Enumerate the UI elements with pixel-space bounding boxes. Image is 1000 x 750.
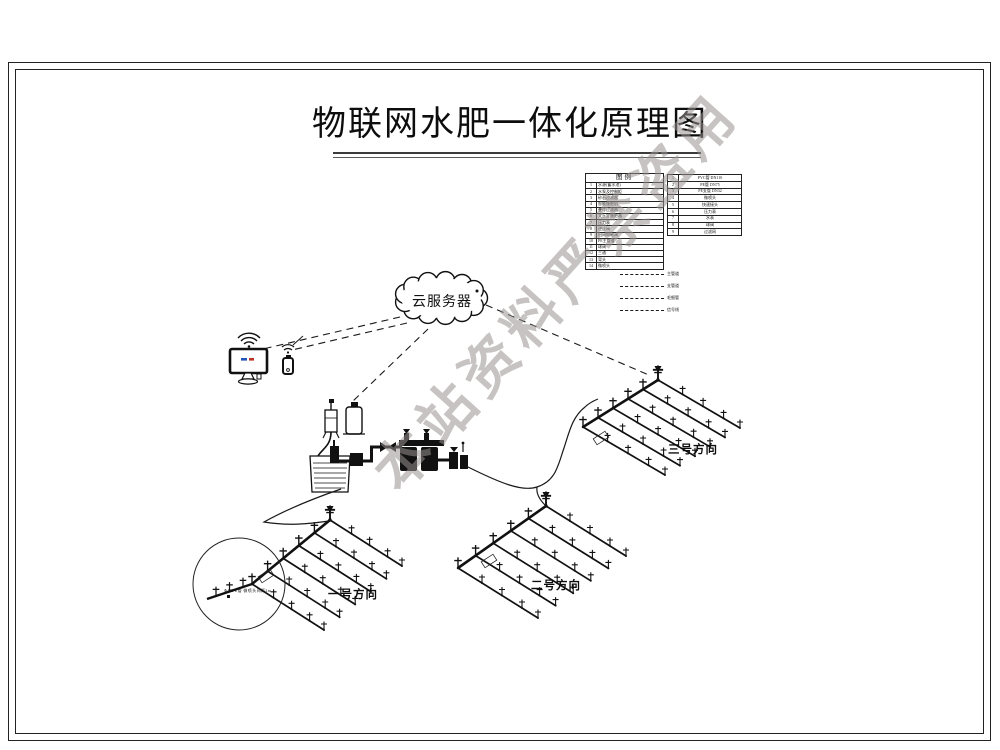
sprinkler-base [313,532,316,535]
field-main-line [252,520,330,584]
sprinkler-base [591,557,593,559]
sprinkler-base [306,596,308,598]
sprinkler-base [499,570,501,572]
irrigation-fields [207,366,743,631]
sprinkler-base [510,530,513,533]
sprinkler-base [597,416,600,419]
legend-line-types: 主管道支管道毛细管信号线 [620,268,710,316]
sprinkler-base [590,580,592,582]
pump-station [310,399,468,492]
irrigation-field-2 [454,492,629,619]
field-main-line [458,506,546,568]
sprinkler-base [648,464,650,466]
sprinkler-base [657,434,659,436]
sprinkler-base [551,532,553,534]
sprinkler-base [527,517,530,520]
sprinkler-base [273,597,275,599]
legend-table-secondary: 1PVC管 DN1102PE管 DN753PE支管 DN324微喷头5快速接头6… [667,174,742,236]
legend-cell: 6 [668,208,679,215]
sprinkler-base [663,455,665,457]
field-2-label: 二号方向 [531,577,581,593]
line-type-sample [620,274,664,275]
sprinkler-base [481,582,483,584]
sprinkler-base [534,545,536,547]
sprinkler-base [612,407,615,410]
sprinkler-base [637,422,639,424]
field-3-label: 三号方向 [668,441,718,457]
submersible-pump [330,446,339,463]
sprinkler-base [304,571,306,573]
sand-filter [421,447,438,471]
pipe-to-field-3 [466,399,598,488]
field-lateral [628,399,710,447]
sprinkler-base [501,595,503,597]
sprinkler-base [519,582,521,584]
field-lateral [528,518,608,568]
sprinkler-base [723,417,725,419]
schematic-drawing [0,0,1000,750]
line-type-label: 毛细管 [667,295,679,301]
sprinkler-base [324,607,326,609]
sprinkler-base [457,567,460,570]
detail-annotation: Φ40PE管 微喷头间距2m [224,588,286,594]
sprinkler-base [642,443,644,445]
disc-filter [449,452,458,469]
legend-cell: 1 [668,175,679,182]
irrigation-field-3 [579,366,743,476]
line-type-sample [620,298,664,299]
legend-title: 图例 [586,174,664,183]
line-type-row: 毛细管 [620,292,710,304]
field-lateral [658,380,740,428]
sprinkler-base [609,545,611,547]
line-type-label: 支管道 [667,283,679,289]
booster-pump [350,453,363,466]
sprinkler-base [322,583,324,585]
field-lateral [643,389,725,437]
check-valve [380,442,388,452]
sprinkler-base [702,405,704,407]
pc-monitor-icon [230,333,267,384]
line-type-label: 信号线 [667,307,679,313]
sprinkler-base [335,546,337,548]
link-cloud-to-pc [263,317,400,349]
sprinkler-base [672,424,674,426]
sprinkler-base [537,617,539,619]
sprinkler-base [385,578,387,580]
sprinkler-base [574,570,576,572]
sprinkler-base [291,608,293,610]
fertilizer-tank-b [346,407,362,434]
sprinkler-base [337,570,339,572]
sprinkler-base [682,393,684,395]
sprinkler-base [569,520,571,522]
legend-cell: PVC管 DN110 [679,175,742,182]
legend-cell: 4 [668,195,679,202]
sprinkler-base [582,426,585,429]
line-type-row: 主管道 [620,268,710,280]
line-type-sample [620,310,664,311]
sprinkler-base [625,555,627,557]
field-lateral [299,546,371,592]
legend-cell: 微喷头 [679,195,742,202]
sprinkler-base [607,567,609,569]
sprinkler-base [607,440,609,442]
sprinkler-base [369,544,371,546]
line-type-sample [620,286,664,287]
sprinkler-base [656,378,659,381]
field-lateral [511,531,591,581]
legend-cell: 水表 [679,215,742,222]
legend-cell: PE支管 DN32 [679,188,742,195]
legend-cell: 球阀 [679,222,742,229]
sprinkler-base [298,544,301,547]
legend-cell: 9 [668,229,679,236]
sand-filter [400,447,417,471]
legend-row: 8球阀 [668,222,742,229]
legend-row: 9过滤网 [668,229,742,236]
sprinkler-base [371,569,373,571]
wifi-icon [284,348,292,350]
legend-cell: 2 [668,181,679,188]
line-type-label: 主管道 [667,271,679,277]
legend-cell: 快速接头 [679,202,742,209]
legend-row: 4微喷头 [668,195,742,202]
sprinkler-base [282,557,285,560]
sprinkler-base [687,415,689,417]
sprinkler-base [288,584,290,586]
sprinkler-base [351,533,353,535]
sprinkler-base [622,431,624,433]
wifi-icon [241,338,257,341]
sprinkler-base [642,388,645,391]
legend-table-main: 图例 1水源(蓄水池)2水泵及控制柜3砂石过滤器4智能施肥机5叠片过滤器6文丘里… [585,173,664,270]
sprinkler-base [401,565,403,567]
sprinkler-base [309,620,311,622]
sprinkler-base [353,557,355,559]
sprinkler-base [215,595,217,597]
sprinkler-base [474,554,477,557]
legend-cell: 7 [668,215,679,222]
sprinkler-base [571,545,573,547]
field-lateral [546,506,626,556]
screen-pixel-red [249,358,254,361]
sprinkler-base [708,427,710,429]
sprinkler-base [544,504,547,507]
sprinkler-base [589,533,591,535]
legend-row: 2PE管 DN75 [668,181,742,188]
sprinkler-base [667,403,669,405]
sprinkler-base [652,412,654,414]
irrigation-field-1 [207,506,405,631]
field-lateral [458,568,538,618]
legend-cell: 8 [668,222,679,229]
sprinkler-base [355,581,357,583]
screen-pixel-blue [241,358,247,361]
sprinkler-base [354,603,356,605]
sprinkler-base [539,595,541,597]
legend-cell: 14 [586,263,597,269]
sprinkler-base [251,583,254,586]
field-lateral [583,427,665,475]
sprinkler-base [387,556,389,558]
legend-row: 7水表 [668,215,742,222]
legend-cell: 3 [668,188,679,195]
sprinkler-base [554,557,556,559]
legend-cell: 压力表 [679,208,742,215]
sprinkler-base [339,616,341,618]
sprinkler-base [319,558,321,560]
link-cloud-to-phone [292,323,407,350]
legend-cell: 过滤网 [679,229,742,236]
legend-row: 3PE支管 DN32 [668,188,742,195]
legend-cell: 5 [668,202,679,209]
dosing-tank-a [325,410,337,432]
legend-cell: PE管 DN75 [679,181,742,188]
detail-annotation-mark [227,595,230,598]
sprinkler-base [536,570,538,572]
legend-row: 5快速接头 [668,202,742,209]
detail-circle [193,538,285,630]
sprinkler-base [521,607,523,609]
drawing-canvas: 物联网水肥一体化原理图 [0,0,1000,750]
cloud-server-label: 云服务器 [404,291,480,311]
sprinkler-base [492,542,495,545]
field-lateral [314,533,386,579]
sprinkler-base [739,427,741,429]
sprinkler-base [627,452,629,454]
field-1-label: 一号方向 [328,586,378,602]
sprinkler-base [323,629,325,631]
line-type-row: 信号线 [620,304,710,316]
legend-row: 1PVC管 DN110 [668,175,742,182]
link-cloud-to-station [352,329,428,402]
sprinkler-base [724,436,726,438]
sprinkler-base [328,518,331,521]
legend-row: 6压力表 [668,208,742,215]
line-type-row: 支管道 [620,280,710,292]
sprinkler-base [693,436,695,438]
field-lateral [330,520,402,566]
sprinkler-base [679,465,681,467]
field-main-line [583,380,658,427]
sprinkler-base [555,605,557,607]
sprinkler-base [664,474,666,476]
wifi-icon [282,345,294,347]
sprinkler-base [516,557,518,559]
wifi-icon [244,342,254,344]
sprinkler-base [627,398,630,401]
